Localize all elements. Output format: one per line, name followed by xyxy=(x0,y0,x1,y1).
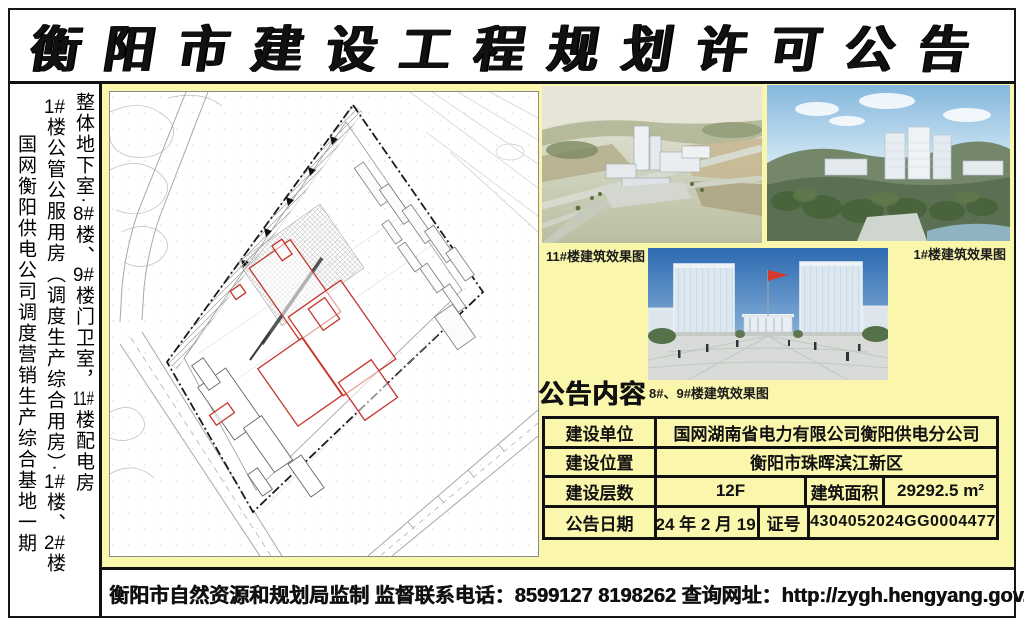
cell-label-date: 公告日期 xyxy=(545,508,657,538)
cell-value-area: 29292.5 m² xyxy=(885,478,996,505)
cell-label-cert: 证号 xyxy=(760,508,810,538)
photo-8-9-building xyxy=(648,248,888,380)
footer-bar: 衡阳市自然资源和规划局监制 监督联系电话：8599127 8198262 查询网… xyxy=(102,567,1014,616)
footer-text: 衡阳市自然资源和规划局监制 监督联系电话：8599127 8198262 查询网… xyxy=(109,579,1024,608)
cell-label-floors: 建设层数 xyxy=(545,478,657,505)
project-name-strip: 国网衡阳供电公司调度营销生产综合基地一期 1#楼公管公服用房（调度生产综合用房）… xyxy=(10,84,102,616)
cell-value-unit: 国网湖南省电力有限公司衡阳供电分公司 xyxy=(657,419,996,446)
cell-value-floors: 12F xyxy=(657,478,807,505)
cell-label-area: 建筑面积 xyxy=(807,478,885,505)
site-plan-panel xyxy=(109,91,539,557)
page-title: 衡阳市建设工程规划许可公告 xyxy=(25,10,998,82)
table-row: 建设位置 衡阳市珠晖滨江新区 xyxy=(545,449,996,479)
cell-value-date: 2024 年 2 月 19 日 xyxy=(657,508,760,538)
announcement-heading: 公告内容 xyxy=(538,374,646,411)
cell-value-cert: 4304052024GG0004477 xyxy=(810,508,996,538)
photo-1-rendering xyxy=(767,85,1010,241)
photo-11-rendering xyxy=(542,86,762,243)
photo-1-building xyxy=(767,85,1010,241)
announcement-table: 建设单位 国网湖南省电力有限公司衡阳供电分公司 建设位置 衡阳市珠晖滨江新区 建… xyxy=(542,416,999,540)
cell-label-location: 建设位置 xyxy=(545,449,657,476)
poster-frame: 衡阳市建设工程规划许可公告 国网衡阳供电公司调度营销生产综合基地一期 1#楼公管… xyxy=(8,8,1016,618)
caption-1-building: 1#楼建筑效果图 xyxy=(914,244,1006,263)
table-row: 建设单位 国网湖南省电力有限公司衡阳供电分公司 xyxy=(545,419,996,449)
caption-8-9-building: 8#、9#楼建筑效果图 xyxy=(649,383,769,402)
project-name-line-2: 1#楼公管公服用房（调度生产综合用房）·1#楼、2#楼 xyxy=(41,98,68,574)
poster-body: 国网衡阳供电公司调度营销生产综合基地一期 1#楼公管公服用房（调度生产综合用房）… xyxy=(10,84,1014,616)
site-plan-drawing xyxy=(110,92,538,556)
caption-11-building: 11#楼建筑效果图 xyxy=(546,246,645,265)
title-bar: 衡阳市建设工程规划许可公告 xyxy=(10,10,1014,84)
cell-label-unit: 建设单位 xyxy=(545,419,657,446)
photo-11-building xyxy=(542,86,762,243)
cell-value-location: 衡阳市珠晖滨江新区 xyxy=(657,449,996,476)
main-content: 11#楼建筑效果图 1#楼建筑效果图 8#、9#楼建筑效果图 公告内容 建设单位… xyxy=(102,84,1014,616)
planning-permit-poster: 衡阳市建设工程规划许可公告 国网衡阳供电公司调度营销生产综合基地一期 1#楼公管… xyxy=(0,0,1024,626)
table-row: 建设层数 12F 建筑面积 29292.5 m² xyxy=(545,478,996,508)
table-row: 公告日期 2024 年 2 月 19 日 证号 4304052024GG0004… xyxy=(545,508,996,538)
photo-8-9-rendering xyxy=(648,248,888,380)
project-name-line-3: 整体地下室·8#楼、9#楼门卫室，11#楼配电房 xyxy=(70,92,97,493)
project-name-line-1: 国网衡阳供电公司调度营销生产综合基地一期 xyxy=(12,134,39,554)
